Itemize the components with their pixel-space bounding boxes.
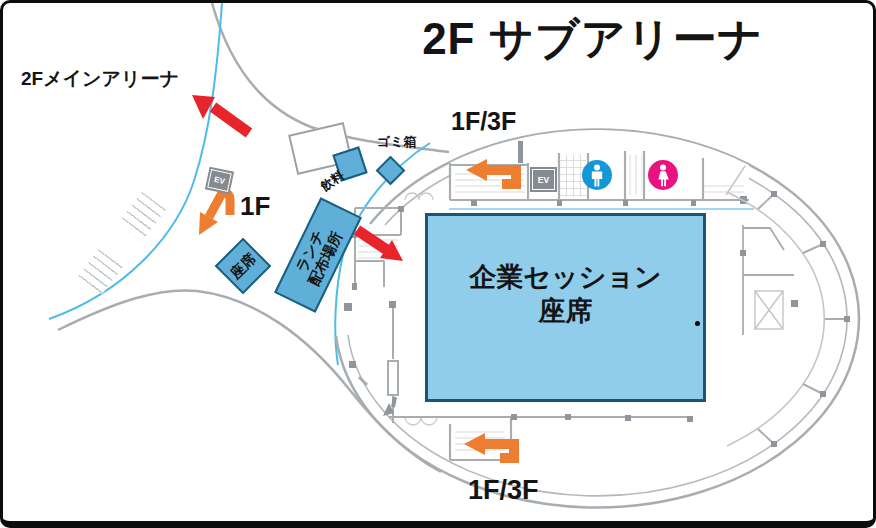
right-interior (727, 191, 850, 447)
elevator-label: EV (538, 175, 549, 185)
elevator-box-top: EV (532, 169, 555, 190)
main-arena-direction-label: 2Fメインアリーナ (21, 69, 179, 88)
elevator-label: EV (213, 175, 225, 186)
stairs-arrow-down-1f (199, 193, 230, 235)
top-room-band (405, 130, 754, 209)
floor-map-2f-sub-arena: 座席 ランチ 配布場所 企業セッション 座席 EV EV 2F サブアリーナ 2… (0, 0, 876, 528)
session-seats-label-line1: 企業セッション (469, 261, 661, 295)
main-arena-red-arrow (192, 95, 249, 133)
door-swing-arcs-bottom (405, 417, 437, 425)
stair-direction-mini-arrow (383, 397, 395, 416)
mens-restroom-icon (582, 160, 612, 190)
womens-restroom-icon (648, 160, 678, 190)
stairs-1f-label: 1F (240, 193, 270, 219)
page-title: 2F サブアリーナ (383, 17, 803, 61)
map-dot-marker (695, 321, 700, 326)
elevator-box-left: EV (207, 169, 231, 192)
session-seats-area: 企業セッション 座席 (425, 213, 706, 402)
stairs-1f3f-bottom-label: 1F/3F (468, 477, 539, 504)
trash-bin-label: ゴミ箱 (377, 135, 417, 148)
stairs-1f3f-top-label: 1F/3F (451, 109, 516, 134)
small-seats-label: 座席 (228, 251, 259, 282)
left-wall-stubs (344, 301, 396, 368)
session-seats-label-line2: 座席 (539, 295, 593, 329)
